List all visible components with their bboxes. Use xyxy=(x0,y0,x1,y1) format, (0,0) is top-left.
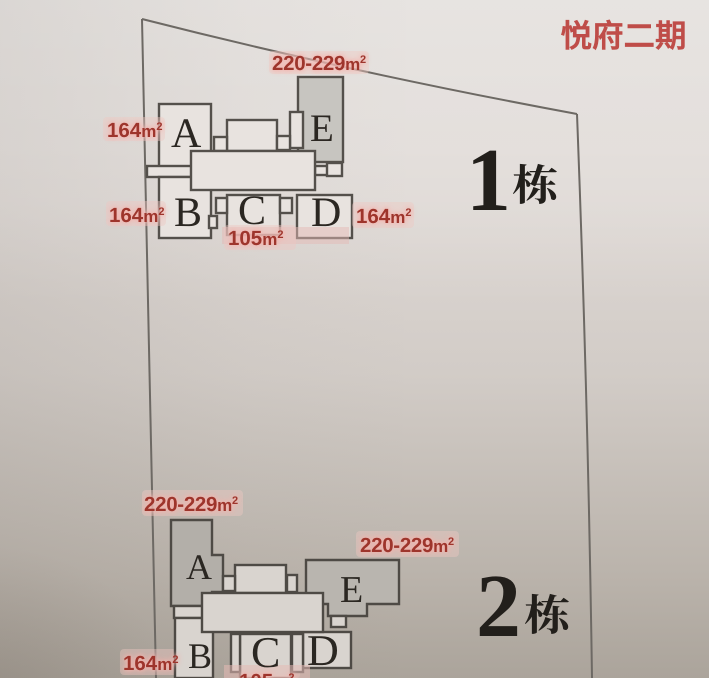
svg-text:1: 1 xyxy=(466,131,511,230)
svg-text:B: B xyxy=(174,190,202,236)
svg-text:220-229m2: 220-229m2 xyxy=(272,52,366,75)
svg-text:A: A xyxy=(171,111,202,157)
svg-text:164m2: 164m2 xyxy=(109,204,164,227)
svg-text:E: E xyxy=(340,569,363,611)
svg-text:164m2: 164m2 xyxy=(123,652,178,675)
svg-text:105m2: 105m2 xyxy=(228,227,283,250)
svg-text:A: A xyxy=(186,547,212,587)
svg-text:164m2: 164m2 xyxy=(356,205,411,228)
svg-text:E: E xyxy=(310,107,334,150)
svg-text:220-229m2: 220-229m2 xyxy=(360,534,454,557)
svg-text:220-229m2: 220-229m2 xyxy=(144,493,238,516)
svg-text:D: D xyxy=(311,190,341,236)
svg-text:2: 2 xyxy=(476,557,521,656)
svg-text:164m2: 164m2 xyxy=(107,119,162,142)
svg-text:B: B xyxy=(188,636,212,676)
svg-text:D: D xyxy=(307,626,339,675)
